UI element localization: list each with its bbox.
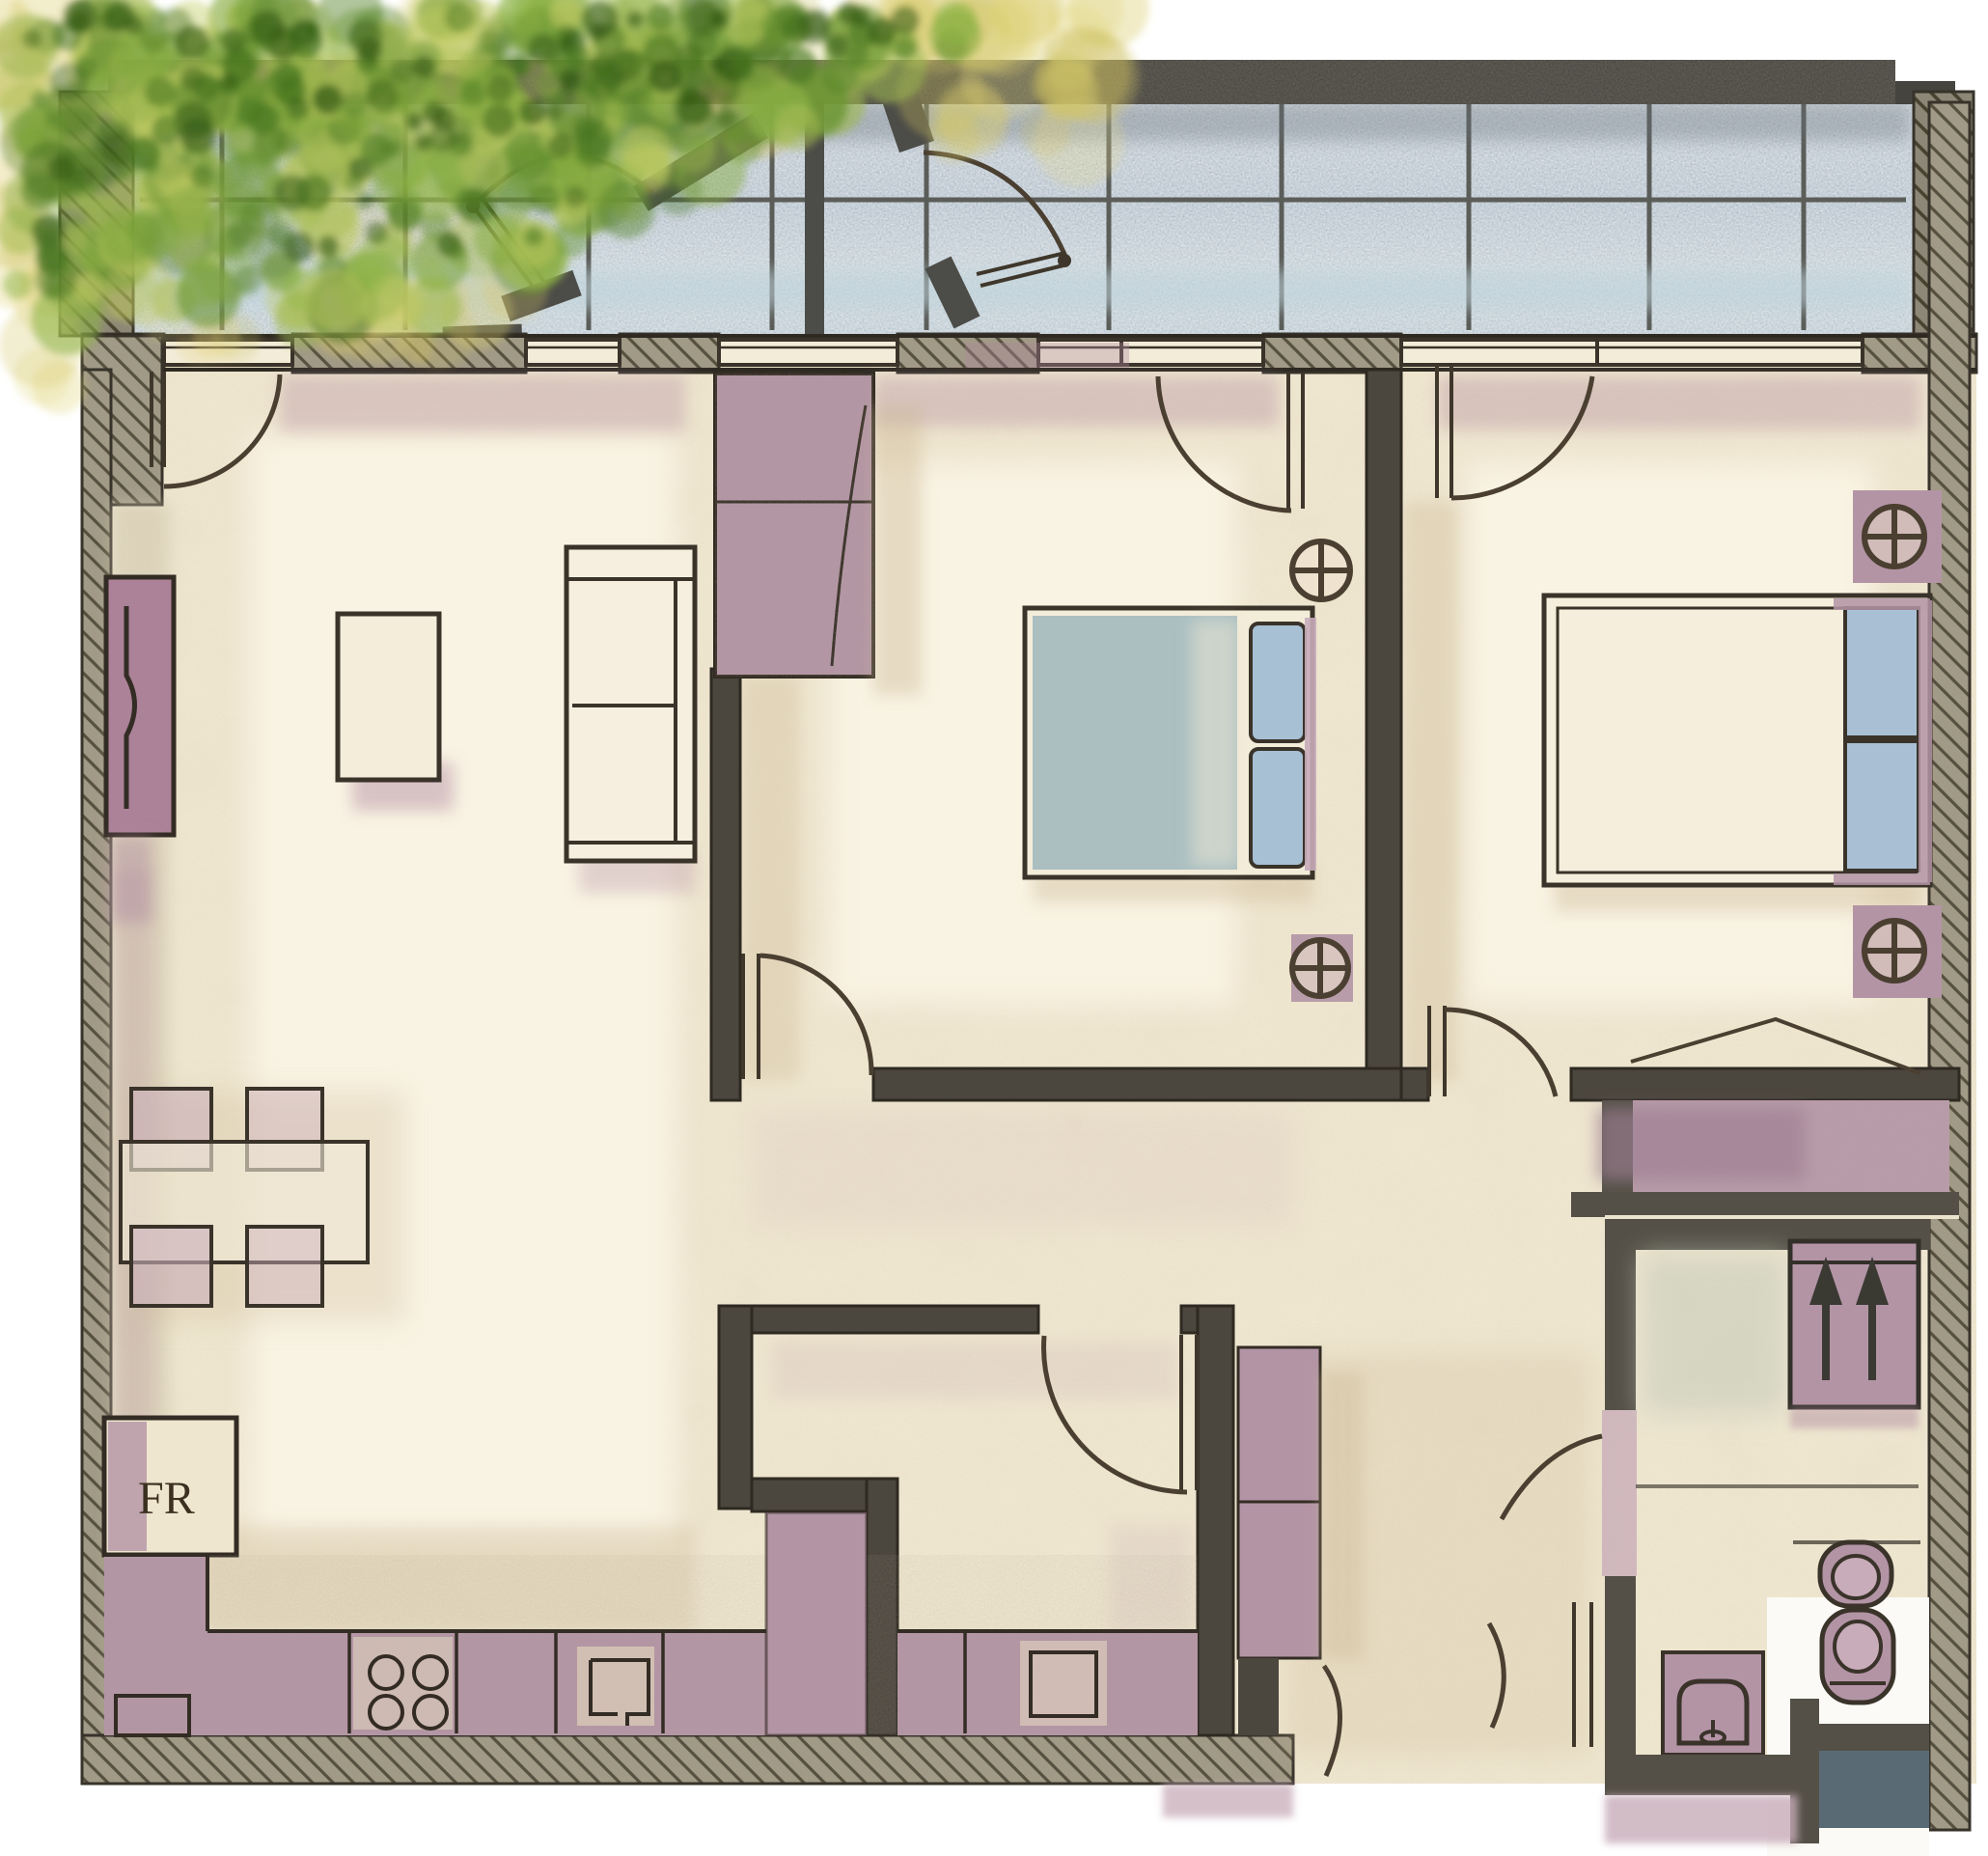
svg-text:FR: FR bbox=[138, 1473, 195, 1524]
